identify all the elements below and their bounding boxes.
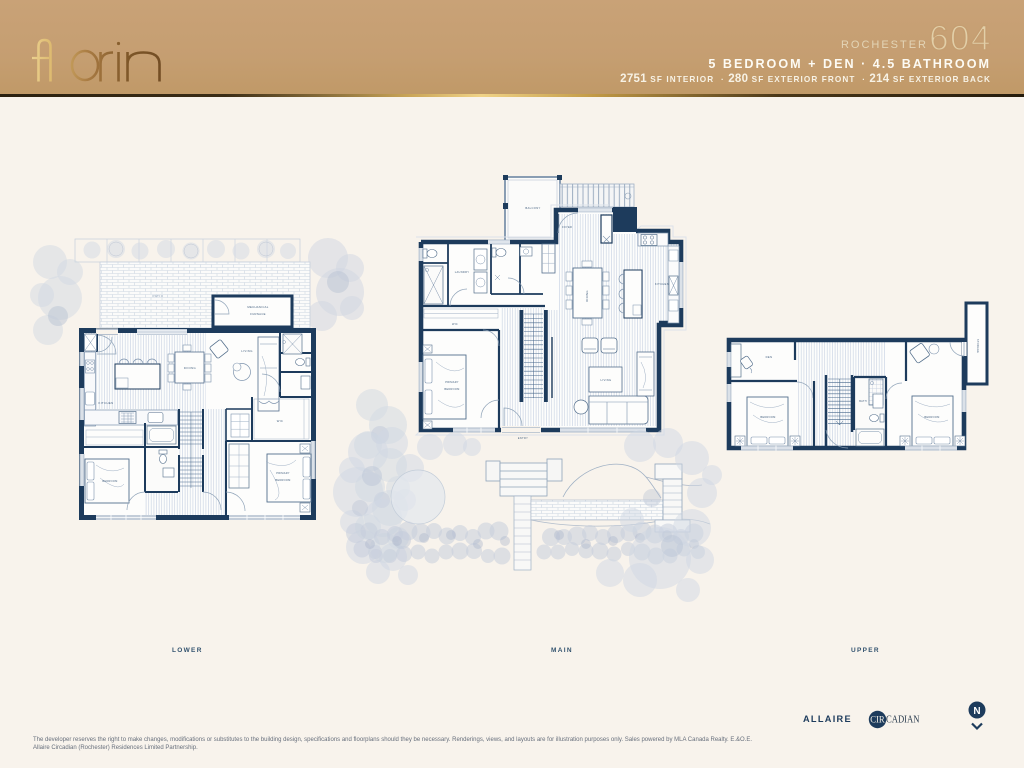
svg-text:DINING: DINING	[184, 366, 196, 370]
svg-text:BEDROOM: BEDROOM	[760, 415, 775, 419]
svg-text:CADIAN: CADIAN	[886, 714, 920, 726]
svg-text:ENTRY: ENTRY	[518, 437, 528, 440]
svg-text:FOYER: FOYER	[562, 226, 572, 229]
svg-text:LIVING: LIVING	[601, 378, 612, 382]
svg-text:WIC: WIC	[277, 419, 284, 423]
svg-text:PRIMARY: PRIMARY	[276, 471, 290, 475]
svg-text:STORAGE: STORAGE	[976, 339, 979, 353]
svg-text:KITCHEN: KITCHEN	[98, 401, 113, 405]
svg-text:KITCHEN: KITCHEN	[655, 282, 669, 286]
svg-text:N: N	[973, 706, 980, 717]
svg-text:LIVING: LIVING	[241, 349, 253, 353]
svg-text:DEN: DEN	[766, 355, 773, 359]
svg-text:PRIMARY: PRIMARY	[445, 380, 459, 384]
svg-text:BALCONY: BALCONY	[525, 206, 540, 210]
svg-text:ALLAIRE: ALLAIRE	[803, 714, 852, 724]
svg-text:BEDROOM: BEDROOM	[444, 387, 459, 391]
svg-text:MECHANICAL: MECHANICAL	[247, 305, 268, 309]
svg-text:PATIO: PATIO	[152, 294, 163, 298]
svg-text:BEDROOM: BEDROOM	[102, 479, 117, 483]
svg-text:CIR: CIR	[870, 716, 885, 726]
svg-text:BATH: BATH	[859, 400, 866, 403]
svg-text:WIC: WIC	[452, 322, 458, 326]
svg-text:DINING: DINING	[585, 290, 589, 302]
svg-text:BEDROOM: BEDROOM	[924, 415, 939, 419]
svg-text:FURNACE: FURNACE	[250, 312, 266, 316]
svg-text:BEDROOM: BEDROOM	[275, 478, 290, 482]
svg-text:LAUNDRY: LAUNDRY	[455, 270, 469, 274]
